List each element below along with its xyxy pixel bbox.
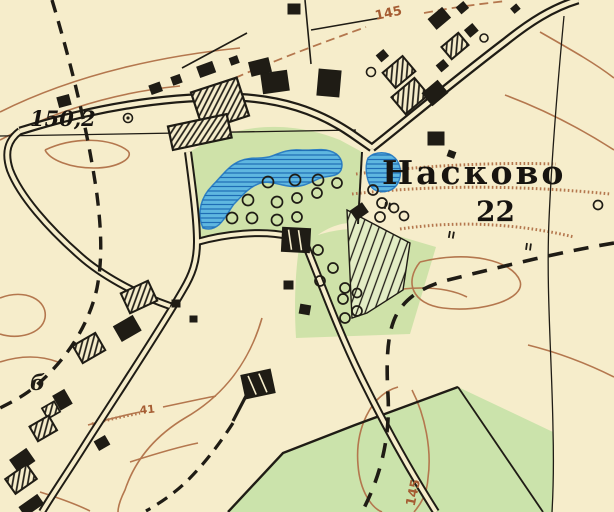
topographic-map[interactable]: Насково 22 150,2 145 145 41 б [0, 0, 614, 512]
elevation-label: 150,2 [30, 106, 96, 131]
contour-label-small: 41 [139, 402, 156, 417]
building-annotation-label: б [30, 370, 45, 395]
map-canvas[interactable]: Насково 22 150,2 145 145 41 б [0, 0, 614, 512]
settlement-count-label: 22 [476, 195, 515, 228]
settlement-label: Насково [382, 153, 566, 192]
